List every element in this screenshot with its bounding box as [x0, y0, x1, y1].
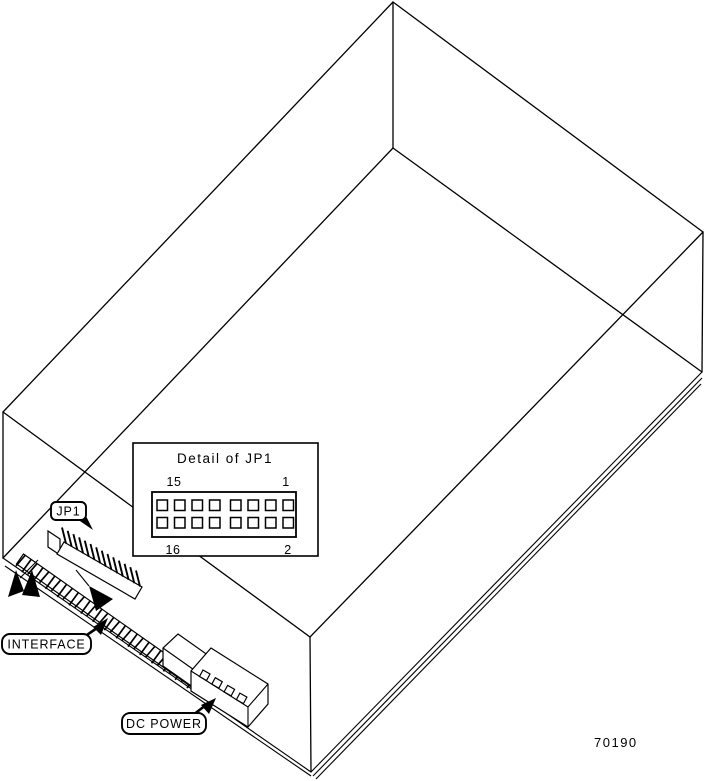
- detail-pin-square: [266, 518, 277, 529]
- detail-pin16-label: 16: [166, 543, 181, 557]
- drive-diagram: Detail of JP1 15 1 16 2 JP1 INTERFACE DC…: [0, 0, 705, 781]
- detail-pin-square: [210, 500, 221, 511]
- figure: Detail of JP1 15 1 16 2 JP1 INTERFACE DC…: [0, 0, 705, 781]
- detail-pin-square: [231, 518, 242, 529]
- interface-pin1-arrow-icon: [8, 570, 24, 597]
- detail-pin-square: [157, 518, 168, 529]
- jp1-pin: [62, 528, 66, 544]
- bottom-right-rim-2: [313, 378, 702, 776]
- detail-inset-title: Detail of JP1: [177, 451, 273, 466]
- bottom-right-rim-3: [316, 384, 701, 779]
- right-vertical-edge: [702, 232, 703, 372]
- detail-pin-square: [192, 500, 203, 511]
- detail-inset: Detail of JP1 15 1 16 2: [133, 443, 318, 557]
- detail-pin1-label: 1: [282, 475, 289, 489]
- jp1-callout: JP1: [51, 502, 93, 530]
- detail-pin-square: [283, 518, 294, 529]
- detail-pin-block: [152, 492, 296, 537]
- interface-callout: INTERFACE: [2, 618, 108, 654]
- inner-right-edge: [393, 148, 702, 372]
- detail-pin-square: [283, 500, 294, 511]
- interface-callout-label: INTERFACE: [7, 638, 85, 652]
- jp1-arrow-shaft: [76, 570, 89, 586]
- bottom-left-rim-1: [3, 558, 311, 772]
- detail-pin-square: [175, 518, 186, 529]
- jp1-callout-label: JP1: [56, 505, 80, 519]
- dc-power-callout-label: DC POWER: [126, 717, 202, 731]
- detail-pin-square: [175, 500, 186, 511]
- figure-number: 70190: [594, 735, 638, 750]
- bottom-left-rim-2: [5, 566, 311, 776]
- top-right-edge: [393, 2, 703, 232]
- front-vertical-edge: [310, 637, 311, 772]
- detail-pin-square: [248, 500, 259, 511]
- detail-pin2-label: 2: [284, 543, 291, 557]
- dc-power-callout: DC POWER: [122, 698, 216, 734]
- detail-pin-square: [192, 518, 203, 529]
- detail-pin-square: [231, 500, 242, 511]
- detail-pin-square: [266, 500, 277, 511]
- front-right-edge: [310, 232, 703, 637]
- detail-pin-square: [210, 518, 221, 529]
- detail-pin15-label: 15: [167, 475, 182, 489]
- top-left-edge: [3, 2, 393, 412]
- detail-pin-square: [157, 500, 168, 511]
- bottom-right-rim-1: [311, 372, 702, 772]
- detail-pin-square: [248, 518, 259, 529]
- drive-body-outline: [3, 2, 703, 779]
